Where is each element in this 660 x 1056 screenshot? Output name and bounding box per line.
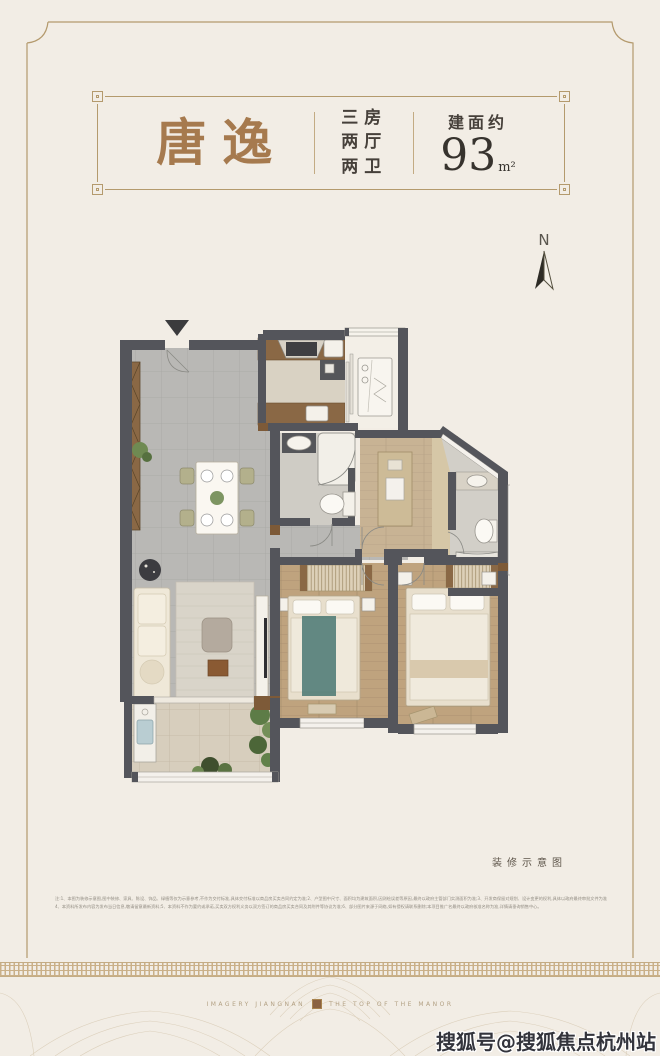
divider: [413, 112, 414, 174]
floorplan-poster: 唐逸 三房 两厅 两卫 建面约 93 m² N: [0, 0, 660, 1056]
middle-bedroom: [278, 563, 388, 723]
footer-right-text: THE TOP OF THE MANOR: [329, 1001, 453, 1008]
balcony: [132, 702, 278, 778]
footer-motto: IMAGERY JIANGNAN THE TOP OF THE MANOR: [0, 1000, 660, 1008]
kitchen: [258, 338, 345, 425]
seal-icon: [313, 1000, 321, 1008]
disclaimer-line: 注:1、本图为装修示意图,图中装修、家具、陈设、饰品、绿植等仅为示意参考,不作为…: [55, 895, 607, 903]
frame-corner-ornament: [557, 182, 572, 197]
study-bedroom: [360, 436, 458, 557]
plan-caption: 装修示意图: [492, 854, 567, 869]
area-unit: m²: [498, 161, 516, 174]
layout-line: 两厅: [341, 132, 387, 153]
floor-plan: [110, 320, 510, 795]
footer-left-text: IMAGERY JIANGNAN: [206, 1001, 305, 1008]
unit-area: 建面约 93 m²: [440, 109, 516, 177]
north-label: N: [527, 231, 561, 249]
unit-name: 唐逸: [156, 118, 288, 168]
frame-corner-ornament: [90, 182, 105, 197]
north-compass: N: [527, 231, 561, 297]
north-arrow-icon: [531, 249, 557, 293]
layout-line: 三房: [341, 108, 387, 129]
layout-line: 两卫: [341, 157, 387, 178]
hall-bathroom: [280, 433, 355, 525]
title-box: 唐逸 三房 两厅 两卫 建面约 93 m²: [97, 96, 565, 190]
divider: [314, 112, 315, 174]
unit-layout: 三房 两厅 两卫: [341, 108, 387, 178]
frame-corner-ornament: [557, 89, 572, 104]
frame-corner-ornament: [90, 89, 105, 104]
disclaimer-line: 4、本资料所发布内容为发布当日信息,敬请留意最新资料;5、本资料不作为要约或承诺…: [55, 903, 607, 911]
area-value: 93: [440, 135, 496, 177]
watermark: 搜狐号@搜狐焦点杭州站: [436, 1026, 656, 1055]
laundry-utility: [345, 332, 405, 428]
